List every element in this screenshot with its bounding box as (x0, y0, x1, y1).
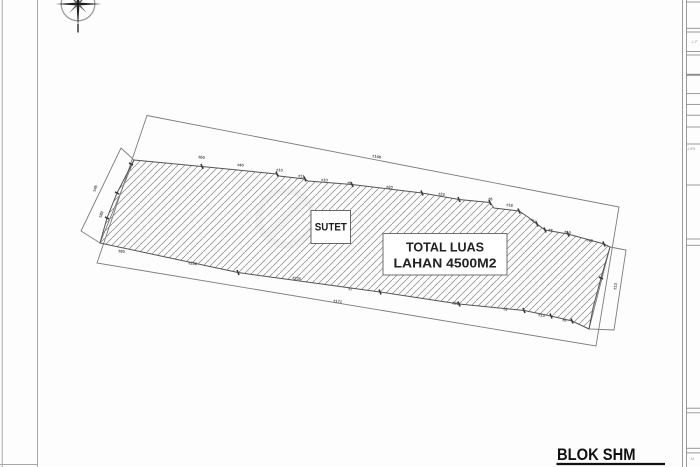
svg-text:-L.P: -L.P (691, 40, 698, 44)
svg-text:SUTET: SUTET (315, 222, 347, 234)
svg-text:±10: ±10 (321, 177, 329, 183)
svg-text:-LIP6: -LIP6 (687, 147, 695, 151)
svg-text:-M: -M (690, 457, 694, 461)
svg-text:LAHAN 4500M2: LAHAN 4500M2 (394, 257, 497, 271)
svg-text:BLOK SHM: BLOK SHM (557, 445, 636, 464)
svg-text:TOTAL LUAS: TOTAL LUAS (406, 241, 484, 255)
